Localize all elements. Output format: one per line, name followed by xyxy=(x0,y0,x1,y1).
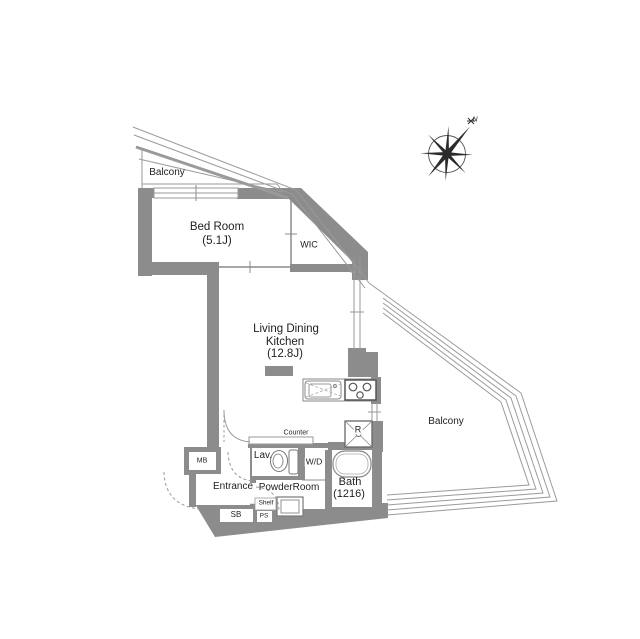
bedroom-window xyxy=(154,185,238,201)
counter-band xyxy=(249,437,313,444)
bath-name-label: Bath xyxy=(339,477,362,489)
wic-label: WIC xyxy=(300,240,318,249)
ldk-left-wall xyxy=(207,267,219,449)
compass-icon xyxy=(420,118,475,181)
bedroom-size-label: (5.1J) xyxy=(202,235,231,247)
bathtub-icon xyxy=(333,451,371,477)
entrance-label: Entrance xyxy=(213,482,253,493)
ldk-name-line2: Kitchen xyxy=(266,336,304,348)
floor-plan-drawing xyxy=(0,0,640,639)
balcony-main-label: Balcony xyxy=(428,417,464,428)
kitchen-window xyxy=(368,403,381,421)
washer-dryer-label: W/D xyxy=(305,458,324,467)
shoe-box-label: SB xyxy=(231,511,242,519)
balcony-main-railing xyxy=(369,283,557,515)
refrigerator-label: R xyxy=(354,425,363,434)
compass-north-label: N xyxy=(472,116,477,123)
kitchen-sink-icon xyxy=(305,381,341,399)
ldk-size-label: (12.8J) xyxy=(267,348,303,360)
meter-box-label: MB xyxy=(197,457,208,464)
ldk-balcony-window xyxy=(350,258,364,350)
bedroom-name-label: Bed Room xyxy=(190,221,244,233)
stove-icon xyxy=(345,380,376,400)
lavatory-label: Lav. xyxy=(254,451,272,462)
kitchen-unit xyxy=(303,379,377,401)
floor-plan-image: Balcony Bed Room (5.1J) WIC Living Dinin… xyxy=(0,0,640,639)
ldk-door-arc xyxy=(224,412,250,442)
ldk-name-line1: Living Dining xyxy=(253,323,319,335)
washer-box xyxy=(277,497,303,516)
powder-room-label: PowderRoom xyxy=(259,483,320,494)
counter-label: Counter xyxy=(284,429,309,436)
wic-diagonal-wall xyxy=(289,188,368,264)
balcony-top-label: Balcony xyxy=(149,168,185,179)
shelf-label: Shelf xyxy=(259,501,274,508)
bath-east-wall xyxy=(372,450,382,510)
bath-size-label: (1216) xyxy=(333,489,365,501)
pipe-space-label: PS xyxy=(260,514,269,521)
ldk-counter-block xyxy=(265,366,293,376)
